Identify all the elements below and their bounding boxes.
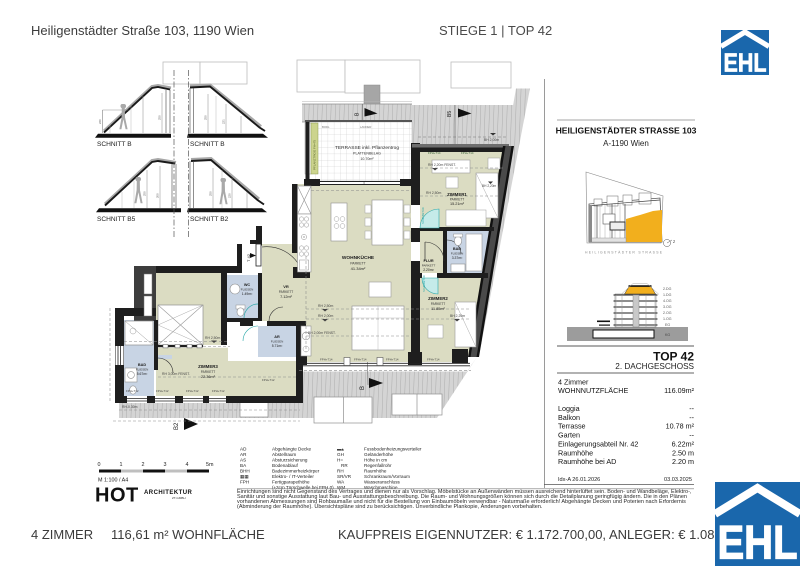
- svg-text:RR: RR: [341, 463, 348, 468]
- svg-text:2.20 m: 2.20 m: [672, 457, 694, 466]
- svg-text:5.71m²: 5.71m²: [272, 344, 283, 348]
- svg-text:2: 2: [142, 462, 145, 468]
- svg-text:SCHIEBETÜR: SCHIEBETÜR: [421, 207, 425, 224]
- svg-text:EHL: EHL: [724, 48, 767, 76]
- svg-text:4.OG: 4.OG: [663, 299, 672, 303]
- svg-text:250: 250: [143, 191, 147, 196]
- svg-text:FPH+T14: FPH+T14: [427, 358, 440, 362]
- svg-text:AD: AD: [240, 447, 247, 452]
- svg-text:Geländerhöhe: Geländerhöhe: [364, 452, 394, 457]
- svg-text:▬▴: ▬▴: [337, 447, 345, 452]
- svg-text:Fertigparapethöhe: Fertigparapethöhe: [272, 480, 310, 485]
- svg-text:A-1190 Wien: A-1190 Wien: [603, 139, 649, 148]
- svg-text:BA: BA: [240, 463, 247, 468]
- svg-text:FPH+T14: FPH+T14: [428, 151, 441, 155]
- svg-text:Abstellraum: Abstellraum: [272, 452, 296, 457]
- svg-text:221: 221: [222, 119, 226, 124]
- svg-text:ZIMMER2: ZIMMER2: [428, 296, 448, 301]
- svg-text:--: --: [689, 431, 694, 440]
- svg-text:RH 2,50m: RH 2,50m: [205, 336, 220, 340]
- svg-text:SCHNITT B: SCHNITT B: [97, 141, 132, 148]
- svg-text:3.OG: 3.OG: [663, 305, 672, 309]
- svg-text:ZT-GMBH: ZT-GMBH: [172, 496, 186, 500]
- svg-text:SCHNITT B2: SCHNITT B2: [190, 216, 229, 223]
- svg-text:SCHNITT B5: SCHNITT B5: [97, 216, 136, 223]
- svg-text:FPH+T12: FPH+T12: [156, 389, 169, 393]
- svg-text:250: 250: [204, 115, 208, 120]
- svg-text:Loggia: Loggia: [558, 404, 580, 413]
- svg-text:FPH+T12: FPH+T12: [186, 389, 199, 393]
- svg-text:PFLANZTROG FH=75: PFLANZTROG FH=75: [313, 140, 317, 170]
- svg-text:AS: AS: [240, 458, 246, 463]
- svg-text:PARKETT: PARKETT: [279, 290, 294, 294]
- svg-text:BH 2,20m: BH 2,20m: [450, 314, 465, 318]
- svg-text:TERRASSE inkl. Pflanzentrog: TERRASSE inkl. Pflanzentrog: [335, 145, 399, 151]
- svg-text:RH: RH: [337, 469, 344, 474]
- svg-text:Terrasse: Terrasse: [558, 422, 586, 431]
- svg-text:FLUR: FLUR: [423, 259, 433, 263]
- svg-text:RH 2,20m FENST.: RH 2,20m FENST.: [428, 163, 456, 167]
- svg-text:HEILIGENSTÄDTER STRASSE: HEILIGENSTÄDTER STRASSE: [585, 251, 663, 255]
- svg-text:EG: EG: [665, 323, 670, 327]
- svg-text:1: 1: [120, 462, 123, 468]
- svg-text:LANDER: LANDER: [360, 125, 371, 129]
- svg-text:1.OG: 1.OG: [663, 317, 672, 321]
- svg-text:Wasseranschluss: Wasseranschluss: [364, 480, 401, 485]
- svg-text:WOHNNUTZFLÄCHE: WOHNNUTZFLÄCHE: [558, 386, 628, 395]
- svg-text:Raumhöhe bei AD: Raumhöhe bei AD: [558, 457, 616, 466]
- svg-text:SCHIEBETÜR: SCHIEBETÜR: [422, 275, 426, 292]
- svg-text:Regenfallrohr: Regenfallrohr: [364, 463, 392, 468]
- svg-text:RH 2,00m: RH 2,00m: [318, 314, 333, 318]
- svg-text:HEILIGENSTÄDTER STRASSE 103: HEILIGENSTÄDTER STRASSE 103: [556, 126, 697, 136]
- svg-text:B5: B5: [447, 111, 453, 117]
- svg-text:PARKETT: PARKETT: [422, 264, 436, 268]
- svg-text:Höhe in cm: Höhe in cm: [364, 458, 387, 463]
- svg-text:RH 2,50m: RH 2,50m: [318, 304, 333, 308]
- svg-text:Einlagerungsabteil Nr. 42: Einlagerungsabteil Nr. 42: [558, 440, 638, 449]
- svg-text:BH 2,20m: BH 2,20m: [482, 184, 497, 188]
- svg-text:WC: WC: [244, 283, 251, 287]
- svg-text:Badezimmerheizkörper: Badezimmerheizkörper: [272, 469, 320, 474]
- svg-text:SR/VR: SR/VR: [337, 474, 352, 479]
- svg-text:PARKETT: PARKETT: [350, 262, 365, 266]
- svg-text:FPH+T14: FPH+T14: [320, 358, 333, 362]
- svg-text:Idx-A 26.01.2026: Idx-A 26.01.2026: [558, 477, 600, 483]
- svg-text:Bodenablauf: Bodenablauf: [272, 463, 299, 468]
- svg-text:Abgehängte Decke: Abgehängte Decke: [272, 447, 312, 452]
- svg-text:Absturzsicherung: Absturzsicherung: [272, 458, 308, 463]
- svg-text:FPH+T12: FPH+T12: [126, 389, 139, 393]
- svg-text:3.37m²: 3.37m²: [452, 256, 463, 260]
- svg-text:BH 2,00m: BH 2,00m: [484, 138, 499, 142]
- svg-text:FPH+T14: FPH+T14: [461, 151, 474, 155]
- svg-text:15.21m²: 15.21m²: [450, 202, 465, 206]
- svg-text:AR: AR: [240, 452, 247, 457]
- svg-text:--: --: [689, 404, 694, 413]
- svg-text:250: 250: [209, 191, 213, 196]
- svg-text:z: z: [673, 239, 676, 244]
- svg-text:2.DG: 2.DG: [663, 287, 672, 291]
- svg-text:ZIMMER1: ZIMMER1: [447, 192, 467, 197]
- svg-text:5.67m²: 5.67m²: [137, 372, 148, 376]
- svg-text:200: 200: [156, 193, 160, 198]
- svg-text:WOHNKÜCHE: WOHNKÜCHE: [342, 254, 375, 261]
- svg-text:Fussbodenheizungsverteiler: Fussbodenheizungsverteiler: [364, 447, 422, 452]
- svg-text:ZIMMER3: ZIMMER3: [198, 364, 218, 369]
- svg-text:2.OG: 2.OG: [663, 311, 672, 315]
- svg-text:AR: AR: [274, 335, 280, 339]
- svg-text:FLIESEN: FLIESEN: [451, 252, 464, 256]
- svg-text:10.78 m²: 10.78 m²: [666, 422, 695, 431]
- svg-text:Schrankraum/Vorraum: Schrankraum/Vorraum: [364, 474, 410, 479]
- svg-text:Elektro- / IT-Verteiler: Elektro- / IT-Verteiler: [272, 474, 314, 479]
- svg-text:RH 3,00m FENST.: RH 3,00m FENST.: [162, 372, 190, 376]
- svg-text:2.20m²: 2.20m²: [423, 268, 434, 272]
- svg-text:BAD: BAD: [453, 247, 461, 251]
- svg-text:22.36m²: 22.36m²: [201, 375, 216, 379]
- svg-text:VR: VR: [283, 284, 289, 289]
- svg-text:RH 2,50m: RH 2,50m: [426, 191, 441, 195]
- svg-text:Raumhöhe: Raumhöhe: [364, 469, 387, 474]
- svg-text:03.03.2025: 03.03.2025: [664, 477, 692, 483]
- svg-text:BH 2,00m FENST.: BH 2,00m FENST.: [308, 331, 336, 335]
- svg-text:EHL: EHL: [718, 516, 798, 566]
- svg-text:HOT: HOT: [95, 485, 139, 507]
- svg-text:FLIESEN: FLIESEN: [271, 340, 284, 344]
- svg-text:B: B: [360, 386, 366, 390]
- svg-text:KG: KG: [665, 333, 670, 337]
- svg-text:2. DACHGESCHOSS: 2. DACHGESCHOSS: [615, 362, 694, 371]
- svg-text:PARKETT: PARKETT: [431, 302, 446, 306]
- svg-text:PARKETT: PARKETT: [201, 370, 216, 374]
- svg-text:FLIESEN: FLIESEN: [241, 288, 254, 292]
- svg-text:Garten: Garten: [558, 431, 580, 440]
- svg-text:1.DG: 1.DG: [663, 293, 672, 297]
- svg-text:41.34m²: 41.34m²: [351, 266, 366, 271]
- svg-text:FPH+T12: FPH+T12: [212, 389, 225, 393]
- svg-text:6.22m²: 6.22m²: [672, 440, 695, 449]
- svg-text:B2: B2: [174, 422, 180, 430]
- svg-text:BAD: BAD: [138, 363, 146, 367]
- svg-text:WA: WA: [337, 480, 345, 485]
- svg-text:FLIESEN: FLIESEN: [136, 368, 149, 372]
- svg-text:3: 3: [164, 462, 167, 468]
- svg-text:FPH+T14: FPH+T14: [386, 358, 399, 362]
- svg-text:4: 4: [186, 462, 189, 468]
- svg-text:10.70m²: 10.70m²: [360, 157, 374, 161]
- svg-text:▦▦: ▦▦: [240, 474, 249, 479]
- svg-text:FPH+T14: FPH+T14: [354, 358, 367, 362]
- svg-text:BHH: BHH: [240, 469, 250, 474]
- svg-text:1.49m²: 1.49m²: [242, 292, 253, 296]
- svg-text:PLATTENBELAG: PLATTENBELAG: [353, 152, 381, 156]
- svg-text:FPH+T12: FPH+T12: [262, 378, 275, 382]
- svg-text:M 1:100 / A4: M 1:100 / A4: [98, 478, 128, 484]
- svg-text:PARKETT: PARKETT: [450, 198, 465, 202]
- svg-text:SCHNITT B: SCHNITT B: [190, 141, 225, 148]
- svg-text:H=: H=: [337, 458, 343, 463]
- svg-text:11.85m²: 11.85m²: [431, 307, 445, 311]
- svg-text:250: 250: [158, 115, 162, 120]
- svg-text:220: 220: [98, 119, 102, 124]
- svg-text:0: 0: [98, 462, 101, 468]
- svg-text:5m: 5m: [206, 462, 214, 468]
- svg-text:FPH: FPH: [240, 480, 249, 485]
- svg-text:RH-0,30m: RH-0,30m: [122, 405, 138, 409]
- svg-text:7.12m²: 7.12m²: [280, 295, 293, 299]
- svg-text:116.09m²: 116.09m²: [664, 386, 694, 395]
- svg-text:GH: GH: [337, 452, 344, 457]
- svg-text:BODL: BODL: [322, 125, 330, 129]
- svg-text:220: 220: [228, 193, 232, 198]
